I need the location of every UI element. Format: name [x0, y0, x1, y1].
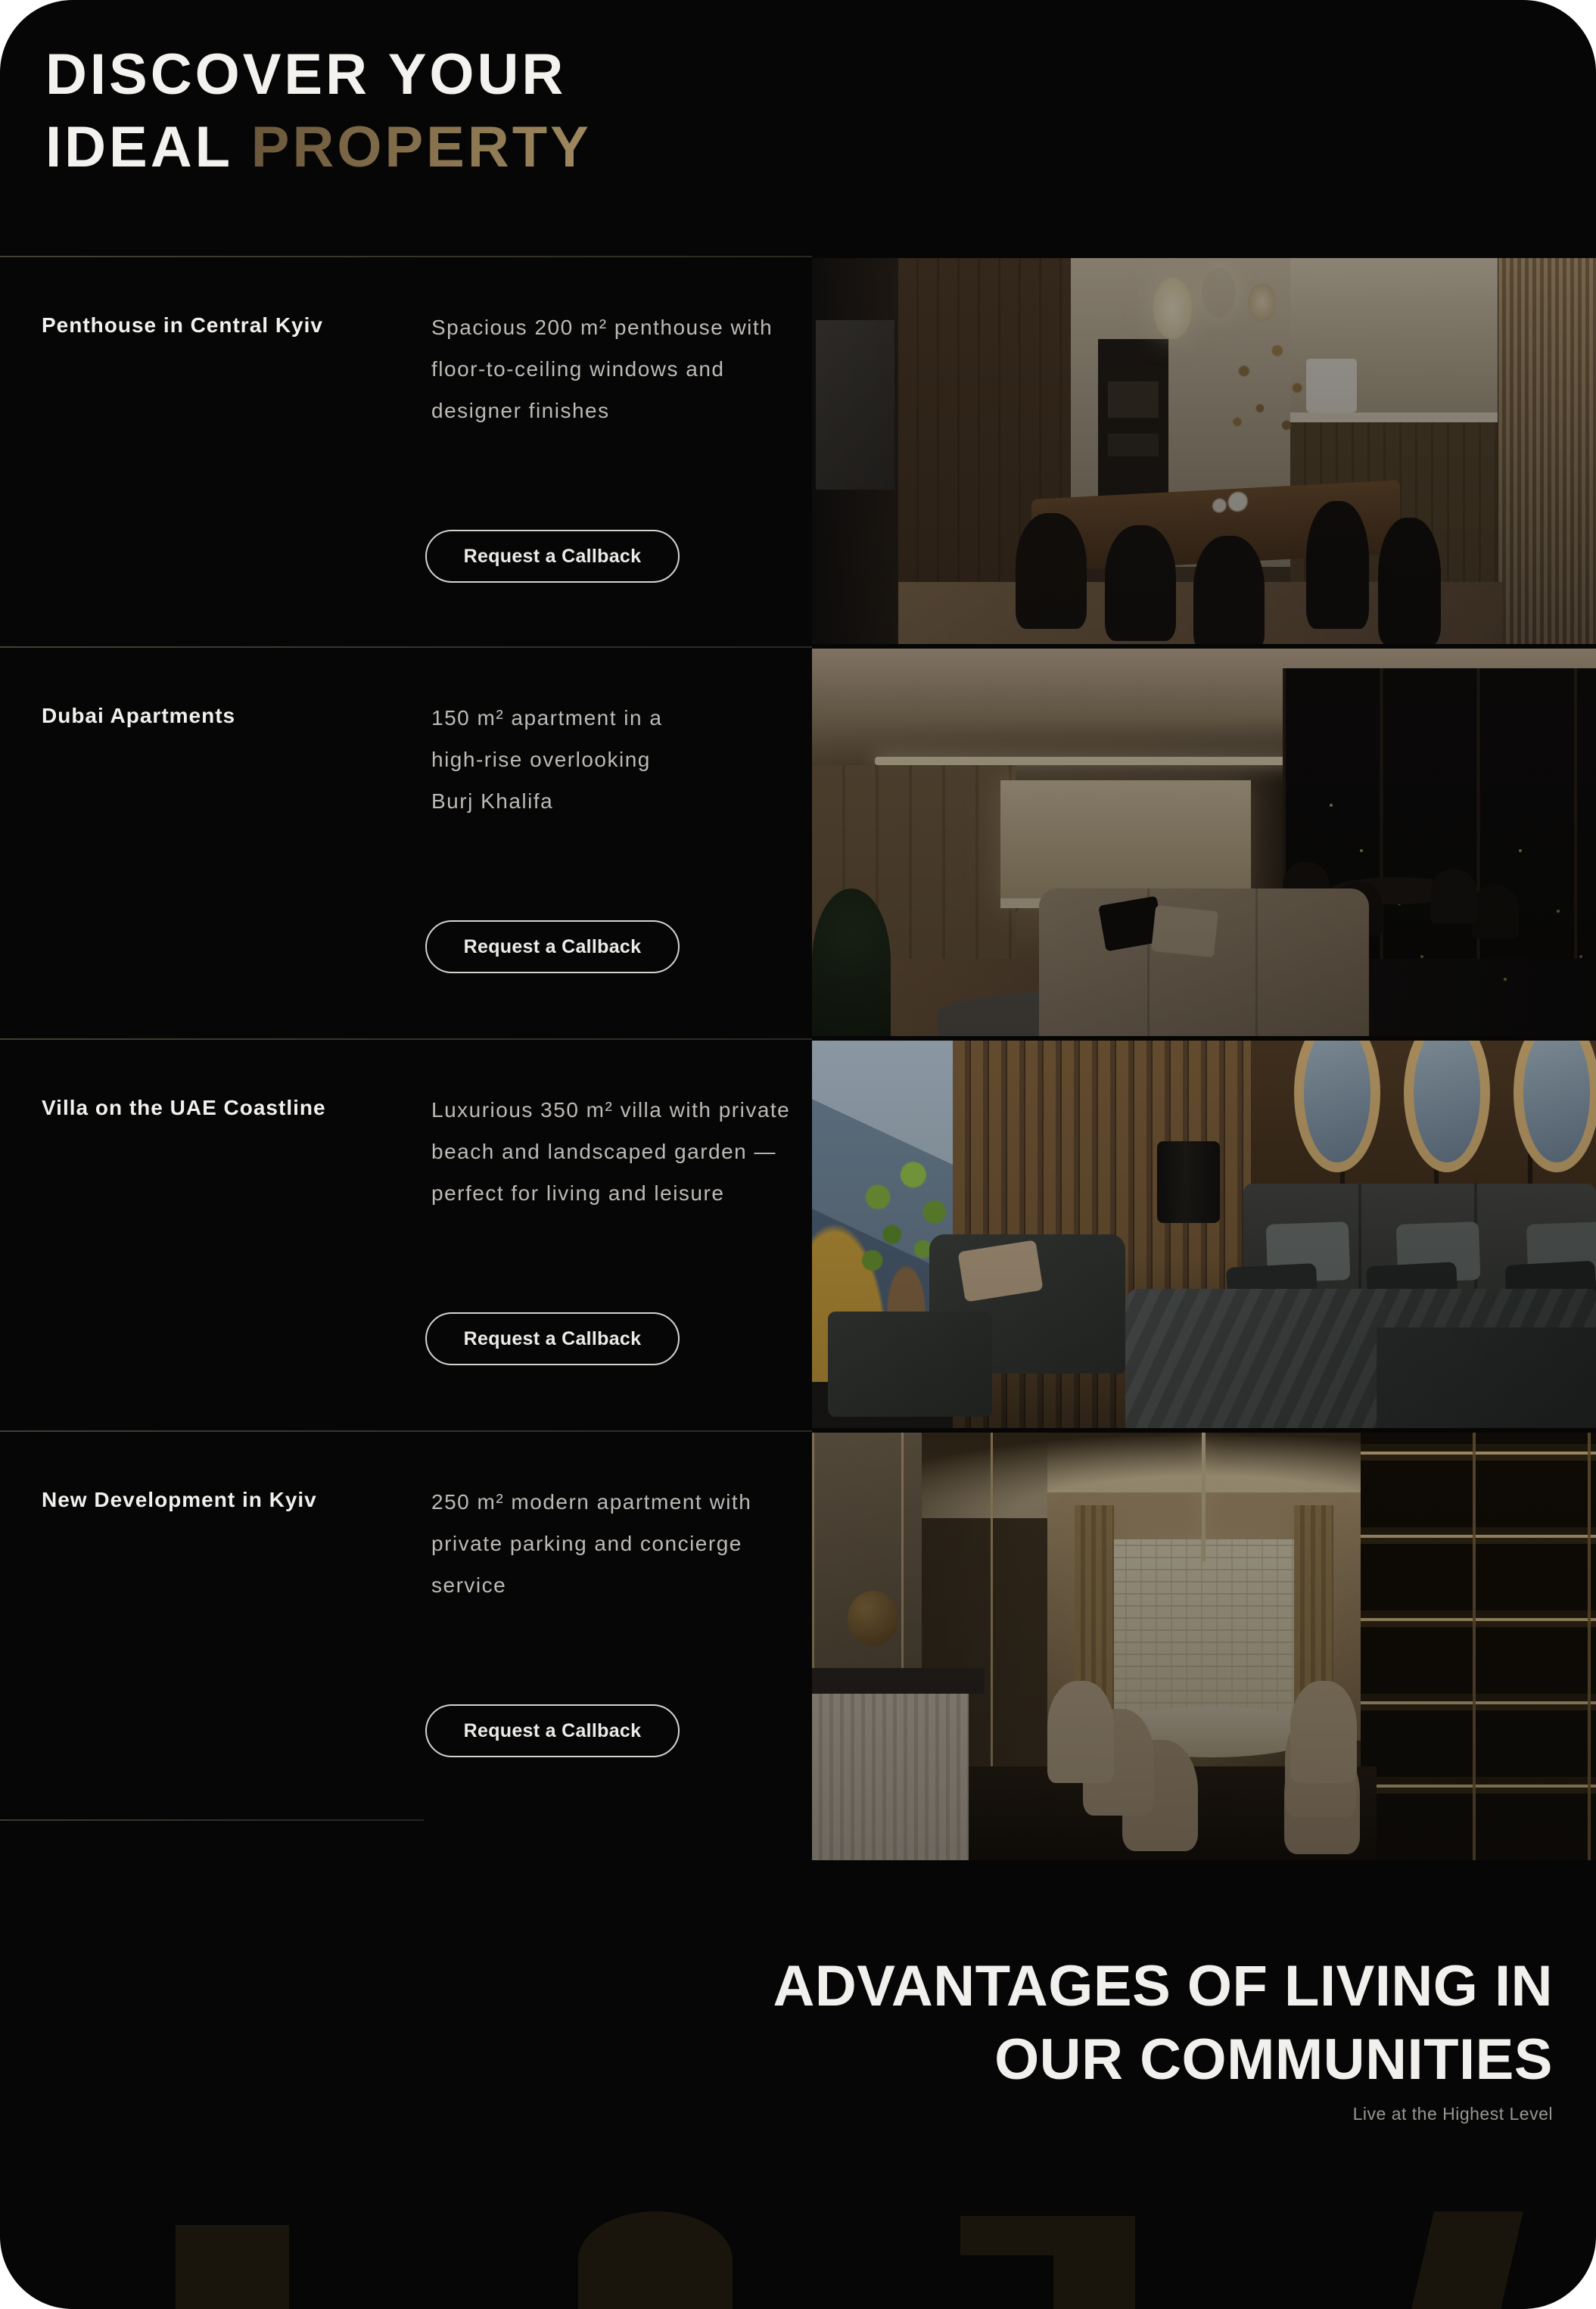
watermark-glyph: [578, 2211, 733, 2309]
property-section-penthouse-kyiv: Penthouse in Central Kyiv Spacious 200 m…: [0, 256, 1596, 646]
property-photo-kitchen-dining: [812, 258, 1596, 644]
property-section-uae-villa: Villa on the UAE Coastline Luxurious 350…: [0, 1038, 1596, 1429]
property-description: 150 m² apartment in a high-rise overlook…: [431, 697, 810, 822]
photo-dark-overlay: [812, 1433, 1596, 1860]
watermark-glyph: [1411, 2211, 1523, 2309]
photo-dark-overlay: [812, 649, 1596, 1036]
advantages-line1: ADVANTAGES OF LIVING IN: [773, 1954, 1554, 2018]
page-title-accent: PROPERTY: [251, 115, 592, 179]
section-divider: [0, 256, 812, 257]
request-callback-button[interactable]: Request a Callback: [425, 920, 680, 973]
photo-dark-overlay: [812, 258, 1596, 644]
advantages-tagline: Live at the Highest Level: [1353, 2104, 1553, 2124]
property-photo-bedroom: [812, 1041, 1596, 1428]
page-title-line2-white: IDEAL: [45, 115, 232, 179]
property-section-dubai-apartments: Dubai Apartments 150 m² apartment in a h…: [0, 646, 1596, 1037]
section-divider: [0, 1819, 424, 1821]
property-section-new-development-kyiv: New Development in Kyiv 250 m² modern ap…: [0, 1430, 1596, 1821]
property-title: Dubai Apartments: [42, 705, 235, 727]
property-photo-golden-dining-room: [812, 1433, 1596, 1860]
section-divider: [0, 1038, 812, 1040]
section-divider: [0, 1430, 812, 1432]
request-callback-button[interactable]: Request a Callback: [425, 1704, 680, 1757]
property-description: 250 m² modern apartment with private par…: [431, 1481, 810, 1606]
request-callback-button[interactable]: Request a Callback: [425, 1312, 680, 1365]
page-title-line1: DISCOVER YOUR: [45, 42, 566, 107]
advantages-headline: ADVANTAGES OF LIVING IN OUR COMMUNITIES: [773, 1950, 1554, 2096]
property-description: Luxurious 350 m² villa with private beac…: [431, 1089, 810, 1214]
property-description: Spacious 200 m² penthouse with floor-to-…: [431, 307, 810, 431]
page-title: DISCOVER YOUR IDEAL PROPERTY: [45, 39, 592, 184]
section-divider: [0, 646, 812, 648]
watermark-glyph: [960, 2216, 1135, 2255]
photo-dark-overlay: [812, 1041, 1596, 1428]
watermark-glyph: [176, 2225, 289, 2309]
property-photo-night-living-room: [812, 649, 1596, 1036]
watermark-glyph: [1053, 2255, 1135, 2309]
advantages-line2: OUR COMMUNITIES: [994, 2027, 1553, 2092]
property-landing-page: DISCOVER YOUR IDEAL PROPERTY Penthouse i…: [0, 0, 1596, 2309]
request-callback-button[interactable]: Request a Callback: [425, 530, 680, 583]
property-title: New Development in Kyiv: [42, 1489, 317, 1511]
property-title: Villa on the UAE Coastline: [42, 1097, 326, 1119]
property-title: Penthouse in Central Kyiv: [42, 314, 323, 337]
